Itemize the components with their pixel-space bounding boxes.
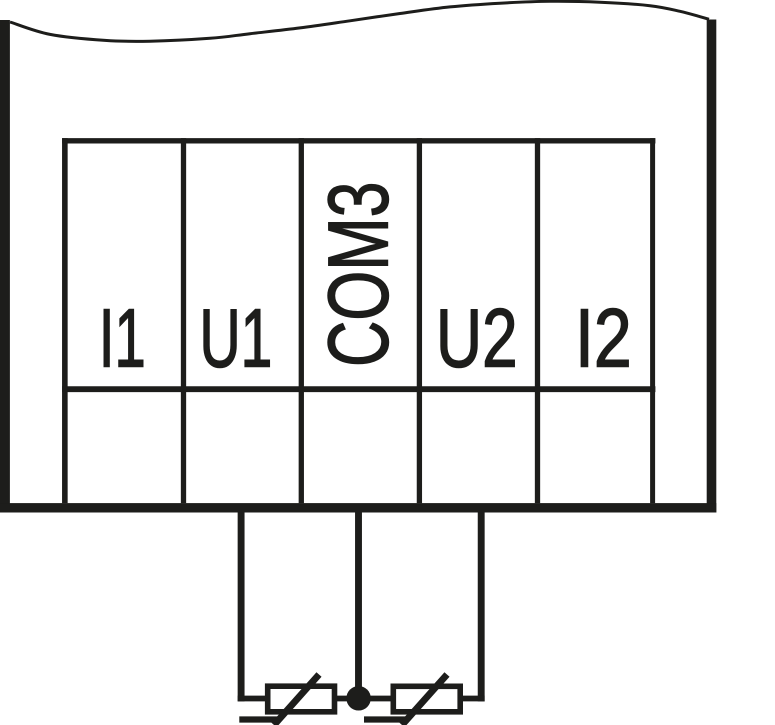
svg-text:COM3: COM3 (311, 182, 406, 367)
svg-text:I2: I2 (575, 292, 632, 385)
svg-text:U2: U2 (436, 291, 517, 384)
svg-text:U1: U1 (200, 293, 273, 385)
svg-text:I1: I1 (99, 293, 146, 386)
